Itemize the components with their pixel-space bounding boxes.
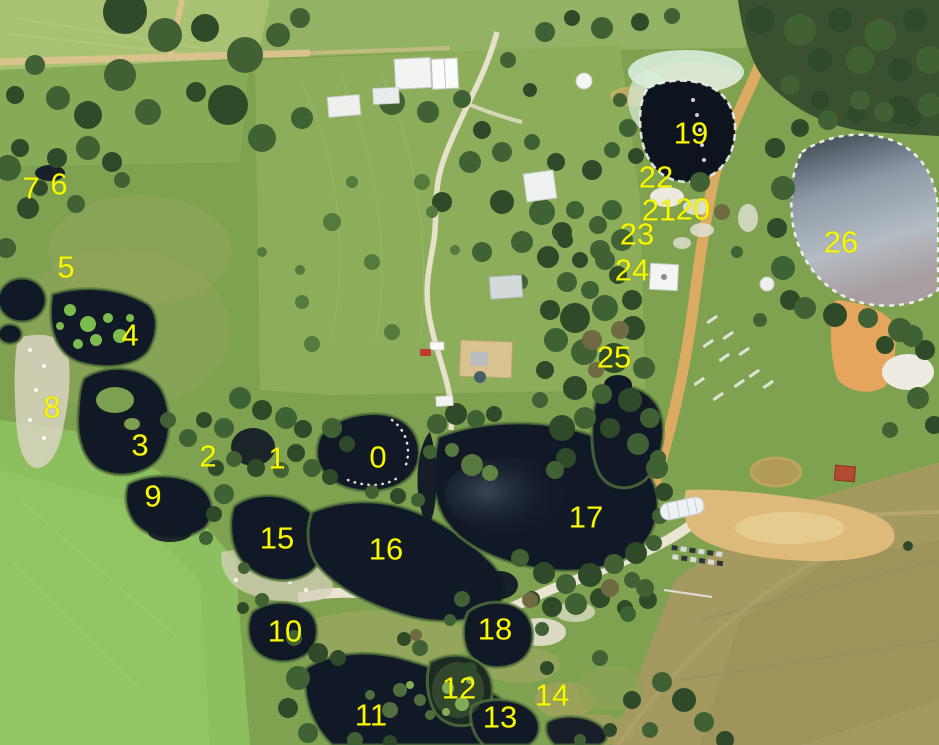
pond-label-24: 24: [615, 254, 649, 285]
pond-label-19: 19: [674, 117, 708, 148]
pond-label-15: 15: [260, 522, 294, 553]
pond-label-3: 3: [131, 429, 148, 460]
pond-label-25: 25: [597, 341, 631, 372]
pond-label-13: 13: [483, 701, 517, 732]
pond-label-10: 10: [268, 615, 302, 646]
pond-label-14: 14: [535, 679, 569, 710]
pond-label-0: 0: [369, 441, 386, 472]
pond-label-26: 26: [824, 226, 858, 257]
pond-label-23: 23: [620, 218, 654, 249]
pond-label-1: 1: [268, 442, 285, 473]
pond-label-17: 17: [569, 501, 603, 532]
pond-label-7: 7: [22, 172, 39, 203]
pond-label-20: 20: [676, 193, 710, 224]
pond-label-8: 8: [43, 391, 60, 422]
pond-label-6: 6: [50, 168, 67, 199]
aerial-photo: 0123456789101112131415161718192021222324…: [0, 0, 939, 745]
pond-label-22: 22: [639, 161, 673, 192]
pond-label-4: 4: [121, 319, 138, 350]
pond-label-16: 16: [369, 533, 403, 564]
pond-label-12: 12: [442, 672, 476, 703]
pond-label-2: 2: [199, 440, 216, 471]
pond-label-9: 9: [144, 480, 161, 511]
pond-label-18: 18: [478, 613, 512, 644]
pond-label-11: 11: [355, 699, 387, 730]
pond-label-5: 5: [57, 251, 74, 282]
marker-layer: 0123456789101112131415161718192021222324…: [0, 0, 939, 745]
